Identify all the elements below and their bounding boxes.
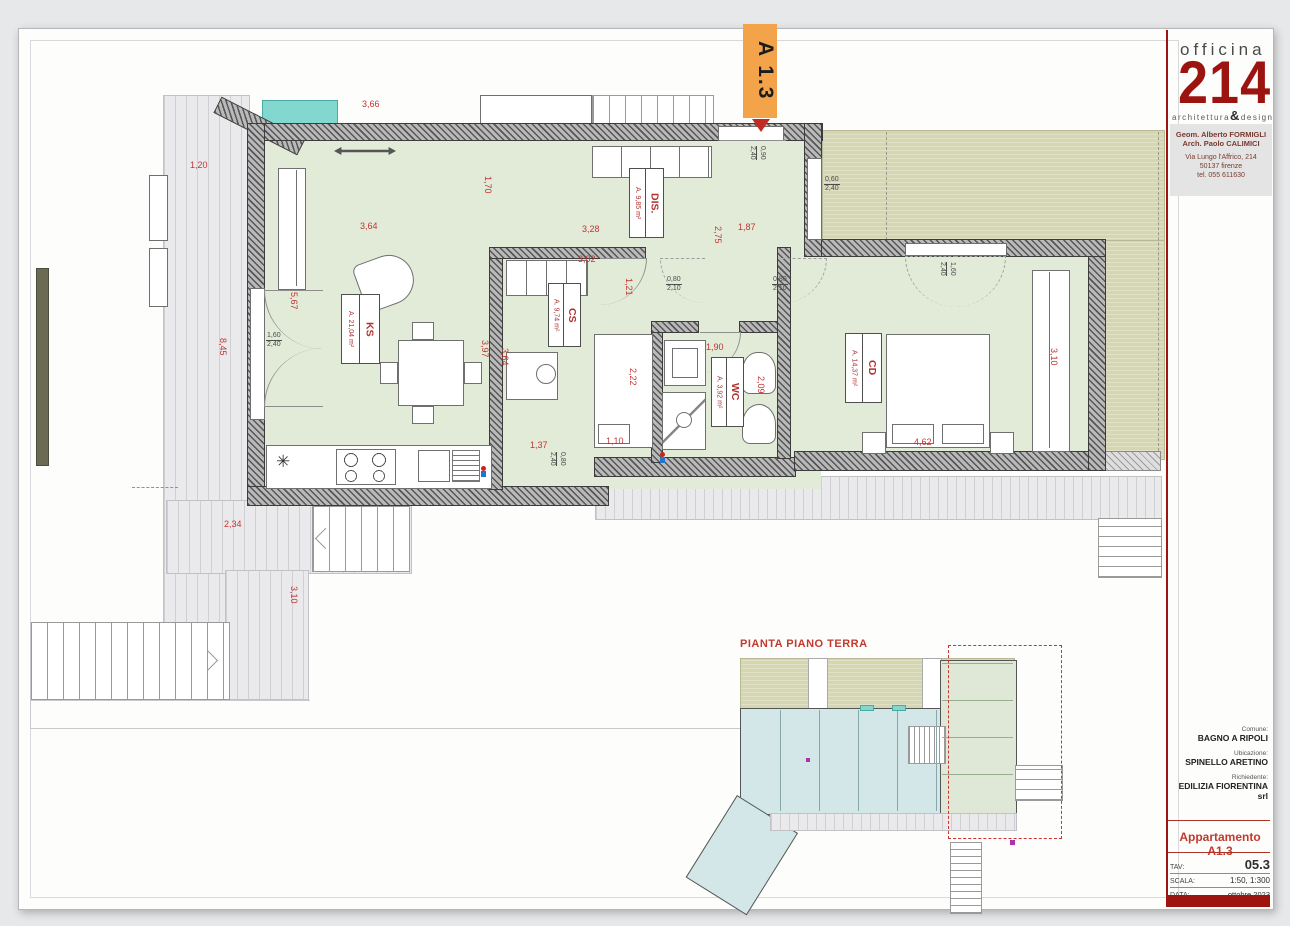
dimension: 2,34 (224, 519, 242, 529)
opening-width: 1,60 (946, 262, 957, 276)
opening-width: 0,80 (772, 276, 788, 285)
room-label-cs: A. 9,74 m² CS (548, 283, 581, 347)
garden-dashed-line (1158, 132, 1159, 456)
opening-spec: 0,80 2,10 (666, 276, 682, 293)
tagline-right: design (1241, 113, 1274, 122)
utility-valve-icon (660, 452, 665, 463)
opening-width: 0,90 (756, 146, 767, 160)
chair (412, 322, 434, 340)
architect-name: Geom. Alberto FORMIGLI (1170, 130, 1272, 139)
dimension: 1,37 (530, 440, 548, 450)
opening-height: 2,40 (549, 452, 556, 466)
title-block-separator (1166, 30, 1168, 907)
wc-sink-basin (672, 348, 698, 378)
wall-wc-left (652, 322, 662, 462)
mini-garden-gap (808, 658, 828, 710)
dimension: 1,20 (190, 160, 208, 170)
hedge-strip (36, 268, 49, 466)
garden-dashed-line (886, 132, 887, 240)
opening-spec: 1,60 2,40 (938, 262, 957, 276)
opening-spec: 0,60 2,40 (824, 176, 840, 193)
comune-value: BAGNO A RIPOLI (1172, 733, 1268, 743)
opening-spec: 0,90 2,40 (748, 146, 767, 160)
tav-label: TAV: (1170, 864, 1184, 871)
room-area: A. 21,04 m² (342, 295, 360, 363)
window-cd (905, 243, 1007, 256)
kitchen-sink (418, 450, 450, 482)
dimension: 8,45 (218, 338, 228, 356)
scala-label: SCALA: (1170, 878, 1195, 885)
wall-mid-bottom (595, 458, 795, 476)
dimension: 3,10 (1049, 348, 1059, 366)
utility-valve-icon (481, 466, 486, 477)
mini-highlight-box (948, 645, 1062, 839)
window-entry (807, 158, 822, 240)
room-name: WC (727, 358, 743, 426)
room-name: DIS. (646, 169, 663, 237)
dimension: 2,22 (628, 368, 638, 386)
studio-address: tel. 055 611630 (1170, 171, 1272, 180)
nightstand (990, 432, 1014, 454)
mini-garden-gap (922, 658, 942, 710)
garden-right (1105, 240, 1165, 460)
wall-cs-top (490, 248, 645, 258)
lot-line (30, 622, 31, 729)
tav-value: 05.3 (1245, 857, 1270, 872)
room-name: KS (360, 295, 379, 363)
opening-height: 2,40 (267, 341, 281, 348)
dimension: 3,66 (362, 99, 380, 109)
door-entry-gap (718, 126, 784, 141)
chair (464, 362, 482, 384)
garden-top-right (822, 130, 1165, 244)
french-door-ks (250, 288, 265, 420)
opening-width: 1,60 (266, 332, 282, 341)
dimension: 3,10 (289, 586, 299, 604)
room-label-dis: A. 9,85 m² DIS. (629, 168, 664, 238)
dimension: 3,28 (582, 224, 600, 234)
room-area: A. 14,37 m² (846, 334, 863, 402)
property-line (132, 487, 178, 488)
dimension: 3,97 (480, 340, 490, 358)
opening-spec: 0,80 2,40 (548, 452, 567, 466)
dimension: 3,02 (578, 254, 596, 264)
dimension: 4,62 (914, 437, 932, 447)
apartment-tag: A 1.3 (743, 24, 777, 118)
freezer-icon: ✳ (276, 452, 290, 472)
opening-height: 2,40 (825, 185, 839, 192)
wall-cd-bottom (795, 452, 1105, 470)
room-label-ks: A. 21,04 m² KS (341, 294, 380, 364)
dimension: 1,10 (606, 436, 624, 446)
studio-tagline: architettura&design (1172, 108, 1272, 123)
studio-logo: 214 (1178, 56, 1266, 110)
toilet (742, 404, 776, 444)
room-name: CD (863, 334, 881, 402)
lot-line (30, 700, 310, 701)
sofa (278, 168, 306, 290)
opening-spec: 1,60 2,40 (266, 332, 282, 349)
desk-chair (536, 364, 556, 384)
tagline-amp: & (1230, 108, 1241, 123)
mini-teal-window (860, 705, 874, 711)
dimension: 3,64 (360, 221, 378, 231)
room-name: CS (564, 284, 580, 346)
overview-title: PIANTA PIANO TERRA (740, 638, 868, 650)
dimension: 3,64 (500, 348, 510, 366)
dimension: 1,21 (624, 278, 634, 296)
studio-address: 50137 firenze (1170, 162, 1272, 171)
opening-height: 2,40 (749, 146, 756, 160)
opening-spec: 0,80 2,10 (772, 276, 788, 293)
wall-garden-retaining (1100, 452, 1160, 470)
bed-pillow (942, 424, 984, 444)
dimension: 1,70 (483, 176, 493, 194)
wall-wc-top (652, 322, 698, 332)
mini-stairs-bottom (950, 842, 982, 914)
opening-height: 2,10 (667, 285, 681, 292)
chair (412, 406, 434, 424)
tagline-left: architettura (1172, 113, 1230, 122)
scala-value: 1:50, 1:300 (1230, 876, 1270, 885)
opening-height: 2,40 (939, 262, 946, 276)
dimension: 2,75 (713, 226, 723, 244)
room-label-wc: A. 3,92 m² WC (711, 357, 744, 427)
wall-right (1089, 240, 1105, 470)
architects-box: Geom. Alberto FORMIGLI Arch. Paolo CALIM… (1170, 124, 1272, 196)
dimension: 5,67 (289, 292, 299, 310)
room-area: A. 9,74 m² (549, 284, 564, 346)
dimension: 1,90 (706, 342, 724, 352)
opening-height: 2,10 (773, 285, 787, 292)
sofa-line (296, 170, 297, 286)
ubicazione-label: Ubicazione: (1172, 750, 1268, 757)
architect-name: Arch. Paolo CALIMICI (1170, 139, 1272, 148)
window-sill-teal (262, 100, 338, 124)
stairs-garden-right (1098, 518, 1162, 578)
ubicazione-value: SPINELLO ARETINO (1172, 757, 1268, 767)
opening-width: 0,60 (824, 176, 840, 185)
mini-teal-window (892, 705, 906, 711)
nightstand (862, 432, 886, 454)
mini-marker (806, 758, 810, 762)
neighbor-window (149, 175, 168, 241)
opening-width: 0,80 (556, 452, 567, 466)
richiedente-value: EDILIZIA FIORENTINA srl (1172, 781, 1268, 801)
room-label-cd: A. 14,37 m² CD (845, 333, 882, 403)
chair (380, 362, 398, 384)
room-area: A. 3,92 m² (712, 358, 727, 426)
title-block-footer-bar (1168, 895, 1270, 907)
apartment-tag-arrow-icon (752, 119, 770, 132)
dimension: 1,87 (738, 222, 756, 232)
divider (1168, 852, 1270, 853)
dining-table (398, 340, 464, 406)
neighbor-room (480, 95, 592, 126)
mini-room-lines (742, 710, 938, 811)
comune-label: Comune: (1172, 726, 1268, 733)
mini-marker (1010, 840, 1015, 845)
drainboard (452, 450, 480, 482)
wall-ks-bottom (248, 487, 608, 505)
opening-width: 0,80 (666, 276, 682, 285)
neighbor-window (149, 248, 168, 307)
studio-address: Via Lungo l'Affrico, 214 (1170, 153, 1272, 162)
apartment-title: Appartamento A1.3 (1170, 830, 1270, 858)
room-area: A. 9,85 m² (630, 169, 646, 237)
richiedente-label: Richiedente: (1172, 774, 1268, 781)
stove (336, 449, 396, 485)
shower-drain (676, 412, 692, 428)
divider (1168, 820, 1270, 821)
dimension: 2,09 (756, 376, 766, 394)
project-meta: Comune: BAGNO A RIPOLI Ubicazione: SPINE… (1172, 726, 1268, 801)
